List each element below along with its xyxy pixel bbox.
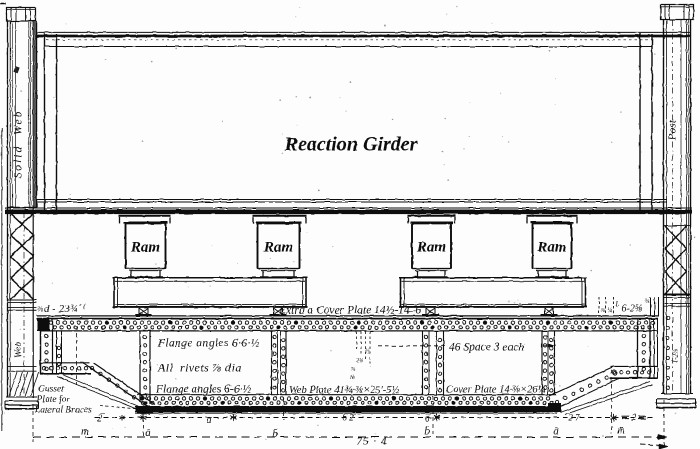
svg-text:L: L xyxy=(615,300,620,308)
svg-text:6-2⅝: 6-2⅝ xyxy=(622,304,643,315)
svg-text:⅜: ⅜ xyxy=(37,305,43,314)
svg-text:№: № xyxy=(349,375,355,381)
svg-text:⅜: ⅜ xyxy=(601,308,606,314)
svg-text:Web Plate 41¾·⅜×25'-5½: Web Plate 41¾·⅜×25'-5½ xyxy=(289,385,400,396)
svg-text:ā: ā xyxy=(553,426,559,438)
svg-text:75 · 4: 75 · 4 xyxy=(357,436,388,448)
svg-text:1-2⅞: 1-2⅞ xyxy=(672,349,680,364)
svg-text:Ram: Ram xyxy=(263,240,293,256)
svg-text:Ram: Ram xyxy=(416,240,446,256)
svg-text:Plate for: Plate for xyxy=(36,394,71,405)
svg-text:2: 2 xyxy=(632,413,637,423)
svg-text:⅜: ⅜ xyxy=(645,298,650,305)
svg-text:½: ½ xyxy=(365,348,370,355)
svg-text:All rivets ⅞ dia: All rivets ⅞ dia xyxy=(157,361,242,375)
svg-text:¼: ¼ xyxy=(608,308,613,314)
svg-text:2·7: 2·7 xyxy=(568,413,580,423)
svg-text:ā: ā xyxy=(145,427,151,439)
svg-text:Post: Post xyxy=(668,119,679,141)
svg-text:Cover Plate 14·⅜×26¼: Cover Plate 14·⅜×26¼ xyxy=(446,385,546,396)
svg-text:b̄: b̄ xyxy=(272,428,278,440)
svg-text:Solid Web: Solid Web xyxy=(13,110,25,179)
svg-text:б: б xyxy=(425,414,430,424)
svg-text:b̄: b̄ xyxy=(424,425,430,437)
svg-text:a̅: a̅ xyxy=(206,415,213,426)
svg-text:Lateral Braces: Lateral Braces xyxy=(34,406,92,416)
svg-text:d - 23¾´⁽: d - 23¾´⁽ xyxy=(44,303,87,315)
svg-text:Ram: Ram xyxy=(130,240,160,256)
svg-text:46 Space 3 each: 46 Space 3 each xyxy=(449,342,524,354)
svg-text:Ram: Ram xyxy=(536,240,566,256)
svg-text:Gusset: Gusset xyxy=(38,385,64,395)
svg-text:Extra a Cover Plate 14½-14–6: Extra a Cover Plate 14½-14–6 xyxy=(278,305,421,317)
svg-text:m̄: m̄ xyxy=(81,426,89,438)
svg-text:2̅: 2̅ xyxy=(98,413,106,423)
svg-text:Flange angles 6-6·½: Flange angles 6-6·½ xyxy=(155,384,252,396)
svg-text:Reaction Girder: Reaction Girder xyxy=(284,134,418,156)
svg-text:2⅜: 2⅜ xyxy=(356,358,364,364)
svg-text:Web: Web xyxy=(14,342,24,358)
svg-text:m̄: m̄ xyxy=(617,425,625,437)
svg-text:⅞: ⅞ xyxy=(351,367,356,373)
svg-text:Flange angles 6·6·½: Flange angles 6·6·½ xyxy=(157,338,260,350)
